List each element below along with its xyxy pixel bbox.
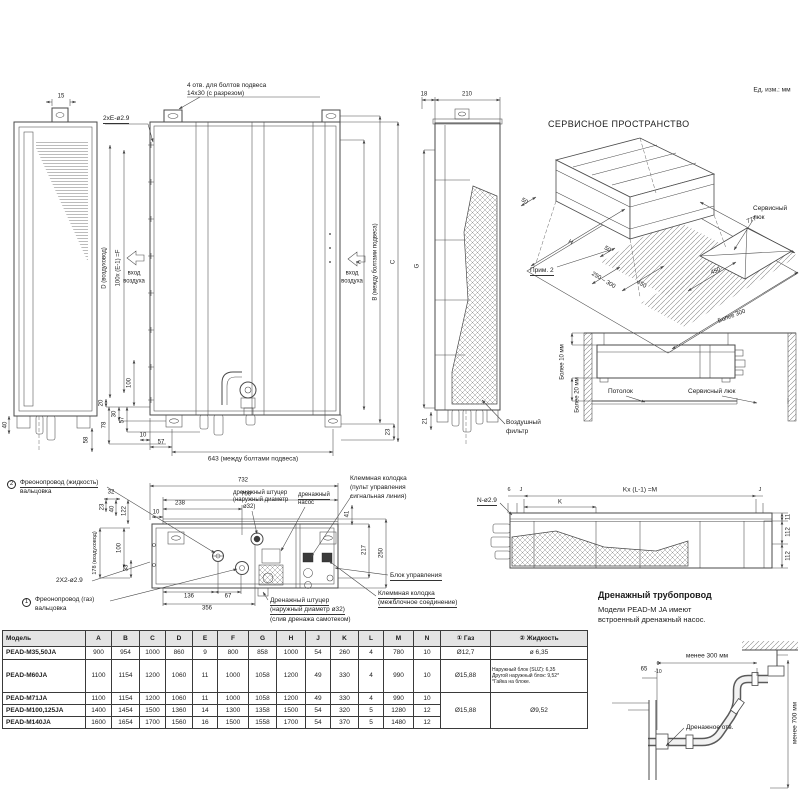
table-row: PEAD-M71JA 11001154 12001060 111000 1058…	[3, 693, 588, 705]
drain-pump-label-2: насос	[298, 500, 314, 507]
col-m: M	[384, 631, 414, 647]
top-dim-112a: 112	[786, 527, 793, 537]
bottom-dim-33: 33	[124, 565, 131, 572]
dimensions-table: Модель A B C D E F G H J K L M N ① Газ ②…	[2, 630, 588, 729]
front-e-holes-label: 2xE-ø2.9	[103, 115, 129, 124]
rear-dim-40: 40	[3, 422, 10, 429]
rear-dim-58: 58	[84, 437, 91, 444]
col-e: E	[193, 631, 218, 647]
front-dim-100: 100	[127, 378, 134, 388]
top-dim-6: 6	[507, 487, 510, 493]
front-air-in-right-1: вход	[346, 271, 359, 278]
table-header-row: Модель A B C D E F G H J K L M N ① Газ ②…	[3, 631, 588, 647]
front-dim-57a: 57	[120, 417, 127, 424]
side-view-drawing	[422, 97, 505, 446]
col-c: C	[140, 631, 166, 647]
col-b: B	[112, 631, 140, 647]
service-note: Прим. 2	[530, 267, 554, 276]
front-pitch-label: 100x (E-1) =F	[116, 250, 123, 287]
control-box-label: Блок управления	[390, 572, 442, 581]
table-row: PEAD-M35,50JA 900954 1000860 9800 858100…	[3, 647, 588, 660]
drain-tol-top: 0	[657, 662, 660, 668]
bottom-dim-67: 67	[225, 594, 232, 601]
bottom-dim-250: 250	[379, 548, 386, 558]
callout-2-badge: 2	[7, 480, 16, 489]
front-dim-57b: 57	[158, 440, 165, 447]
terminal1-label-3: сигнальная линия)	[350, 493, 407, 500]
front-dim-30: 30	[112, 411, 119, 418]
col-liquid: ② Жидкость	[491, 631, 588, 647]
col-a: A	[86, 631, 112, 647]
liquid-merged-cell: Ø9,52	[491, 693, 588, 729]
front-dim-b: В (между болтами подвеса)	[373, 223, 380, 300]
ceiling-detail-drawing	[572, 333, 796, 421]
col-l: L	[359, 631, 384, 647]
callout-1-label-1: Фреонопровод (газ)	[35, 596, 94, 603]
bottom-dim-32: 32	[108, 490, 115, 497]
table-row: PEAD-M60JA 11001154 12001060 111000 1058…	[3, 660, 588, 693]
drain-dim-300: менее 300 мм	[686, 652, 728, 659]
air-filter-label-2: фильтр	[506, 428, 528, 435]
col-k: K	[331, 631, 359, 647]
drain-tol-bottom: -10	[654, 670, 661, 676]
drain-stub-bottom-label-3: (слив дренажа самотеком)	[270, 616, 351, 623]
front-dim-10: 10	[140, 433, 147, 440]
bottom-dim-217: 217	[362, 545, 369, 555]
col-gas: ① Газ	[441, 631, 491, 647]
col-model: Модель	[3, 631, 86, 647]
bottom-dim-238: 238	[175, 501, 185, 508]
service-space-drawing	[521, 138, 798, 353]
ceiling-label: Потолок	[608, 388, 633, 395]
front-dim-23: 23	[386, 429, 393, 436]
technical-drawing-page: Ед. изм.: мм 15 40 58 4 отв. для болтов …	[0, 0, 800, 800]
top-view-drawing	[491, 496, 788, 568]
drain-dim-65: 65	[641, 667, 648, 674]
drain-stub-top-label-2: (наружный диаметр	[233, 497, 288, 504]
side-dim-210: 210	[462, 92, 472, 99]
ceiling-dim-more20: Более 20 мм	[575, 377, 582, 413]
bottom-dim-356: 356	[202, 606, 212, 613]
drain-hole-label: Дренажное отв.	[686, 724, 734, 731]
top-dim-j-right: J	[759, 487, 762, 493]
side-dim-18: 18	[421, 92, 428, 99]
ceiling-hatch-label: Сервисный люк	[688, 388, 735, 395]
callout-2-label-1: Фреонопровод (жидкость)	[20, 479, 98, 488]
drain-note-1: Модели PEAD-M JA имеют	[598, 606, 691, 615]
rear-view-drawing	[9, 99, 97, 452]
liquid-note-line: *Гайка на блоке.	[492, 679, 586, 685]
callout-1-label-2: вальцовка	[35, 605, 67, 612]
bottom-dim-41: 41	[345, 511, 352, 518]
front-air-in-left-2: воздуха	[123, 279, 145, 286]
drain-dim-700: менее 700 мм	[791, 702, 798, 744]
drain-stub-top-label-1: дренажный штуцер	[233, 490, 287, 497]
terminal1-label-1: Клеммная колодка	[350, 475, 407, 482]
bottom-dim-10: 10	[153, 510, 160, 517]
units-label: Ед. изм.: мм	[753, 86, 790, 93]
top-dim-j-left: J	[520, 487, 523, 493]
top-dim-11: 11	[786, 514, 793, 520]
front-dim-a: A	[357, 260, 364, 264]
bottom-dim-40: 40	[110, 506, 117, 513]
bottom-dim-100: 100	[117, 543, 124, 553]
side-dim-21: 21	[423, 418, 430, 425]
rear-dim-15: 15	[58, 94, 65, 101]
top-dim-112b: 112	[786, 551, 793, 561]
front-holes-note-1: 4 отв. для болтов подвеса	[187, 82, 266, 89]
front-air-in-left-1: вход	[128, 271, 141, 278]
front-dim-643: 643 (между болтами подвеса)	[208, 455, 298, 462]
front-dim-c: C	[391, 260, 398, 264]
gas-merged-cell: Ø15,88	[441, 693, 491, 729]
callout-2-label-2: вальцовка	[20, 488, 52, 495]
col-h: H	[277, 631, 306, 647]
col-n: N	[414, 631, 441, 647]
top-dim-m: Kx (L-1) =M	[623, 486, 657, 493]
front-dim-78: 78	[102, 422, 109, 429]
drain-section-title: Дренажный трубопровод	[598, 590, 712, 600]
service-hatch-label-1: Сервисный	[753, 205, 787, 212]
drain-stub-bottom-label-1: Дренажный штуцер	[270, 597, 329, 606]
front-holes-note-2: 14x30 (с разрезом)	[187, 90, 244, 97]
col-g: G	[249, 631, 277, 647]
drain-piping-drawing	[612, 641, 798, 788]
bottom-dim-732: 732	[238, 478, 248, 485]
callout-1-badge: 1	[22, 598, 31, 607]
side-dim-g: G	[415, 264, 422, 269]
terminal2-label-2: (межблочное соединение)	[378, 599, 457, 608]
top-holes-label: N-ø2.9	[477, 497, 497, 506]
col-f: F	[218, 631, 249, 647]
service-space-title: СЕРВИСНОЕ ПРОСТРАНСТВО	[548, 119, 690, 129]
top-dim-k: K	[558, 500, 562, 507]
drain-note-2: встроенный дренажный насос.	[598, 616, 706, 625]
air-filter-label-1: Воздушный	[506, 419, 541, 426]
front-dim-20: 20	[99, 400, 106, 407]
terminal1-label-2: (пульт управления	[350, 484, 406, 491]
bottom-dim-122: 122	[122, 506, 129, 516]
ceiling-dim-more10: Более 10 мм	[560, 344, 567, 380]
bottom-holes-label: 2X2-ø2.9	[56, 577, 83, 584]
drain-stub-top-label-3: ø32)	[243, 504, 255, 511]
col-j: J	[306, 631, 331, 647]
front-air-in-right-2: воздуха	[341, 279, 363, 286]
bottom-dim-23: 23	[100, 504, 107, 511]
bottom-dim-136: 136	[184, 594, 194, 601]
terminal2-label-1: Клеммная колодка	[378, 590, 435, 599]
bottom-duct-dim: 178 (воздуховод)	[92, 531, 98, 574]
col-d: D	[166, 631, 193, 647]
front-duct-label: D (воздуховод)	[102, 247, 109, 289]
service-hatch-label-2: люк	[753, 214, 765, 221]
drain-stub-bottom-label-2: (наружный диаметр ø32)	[270, 606, 345, 615]
